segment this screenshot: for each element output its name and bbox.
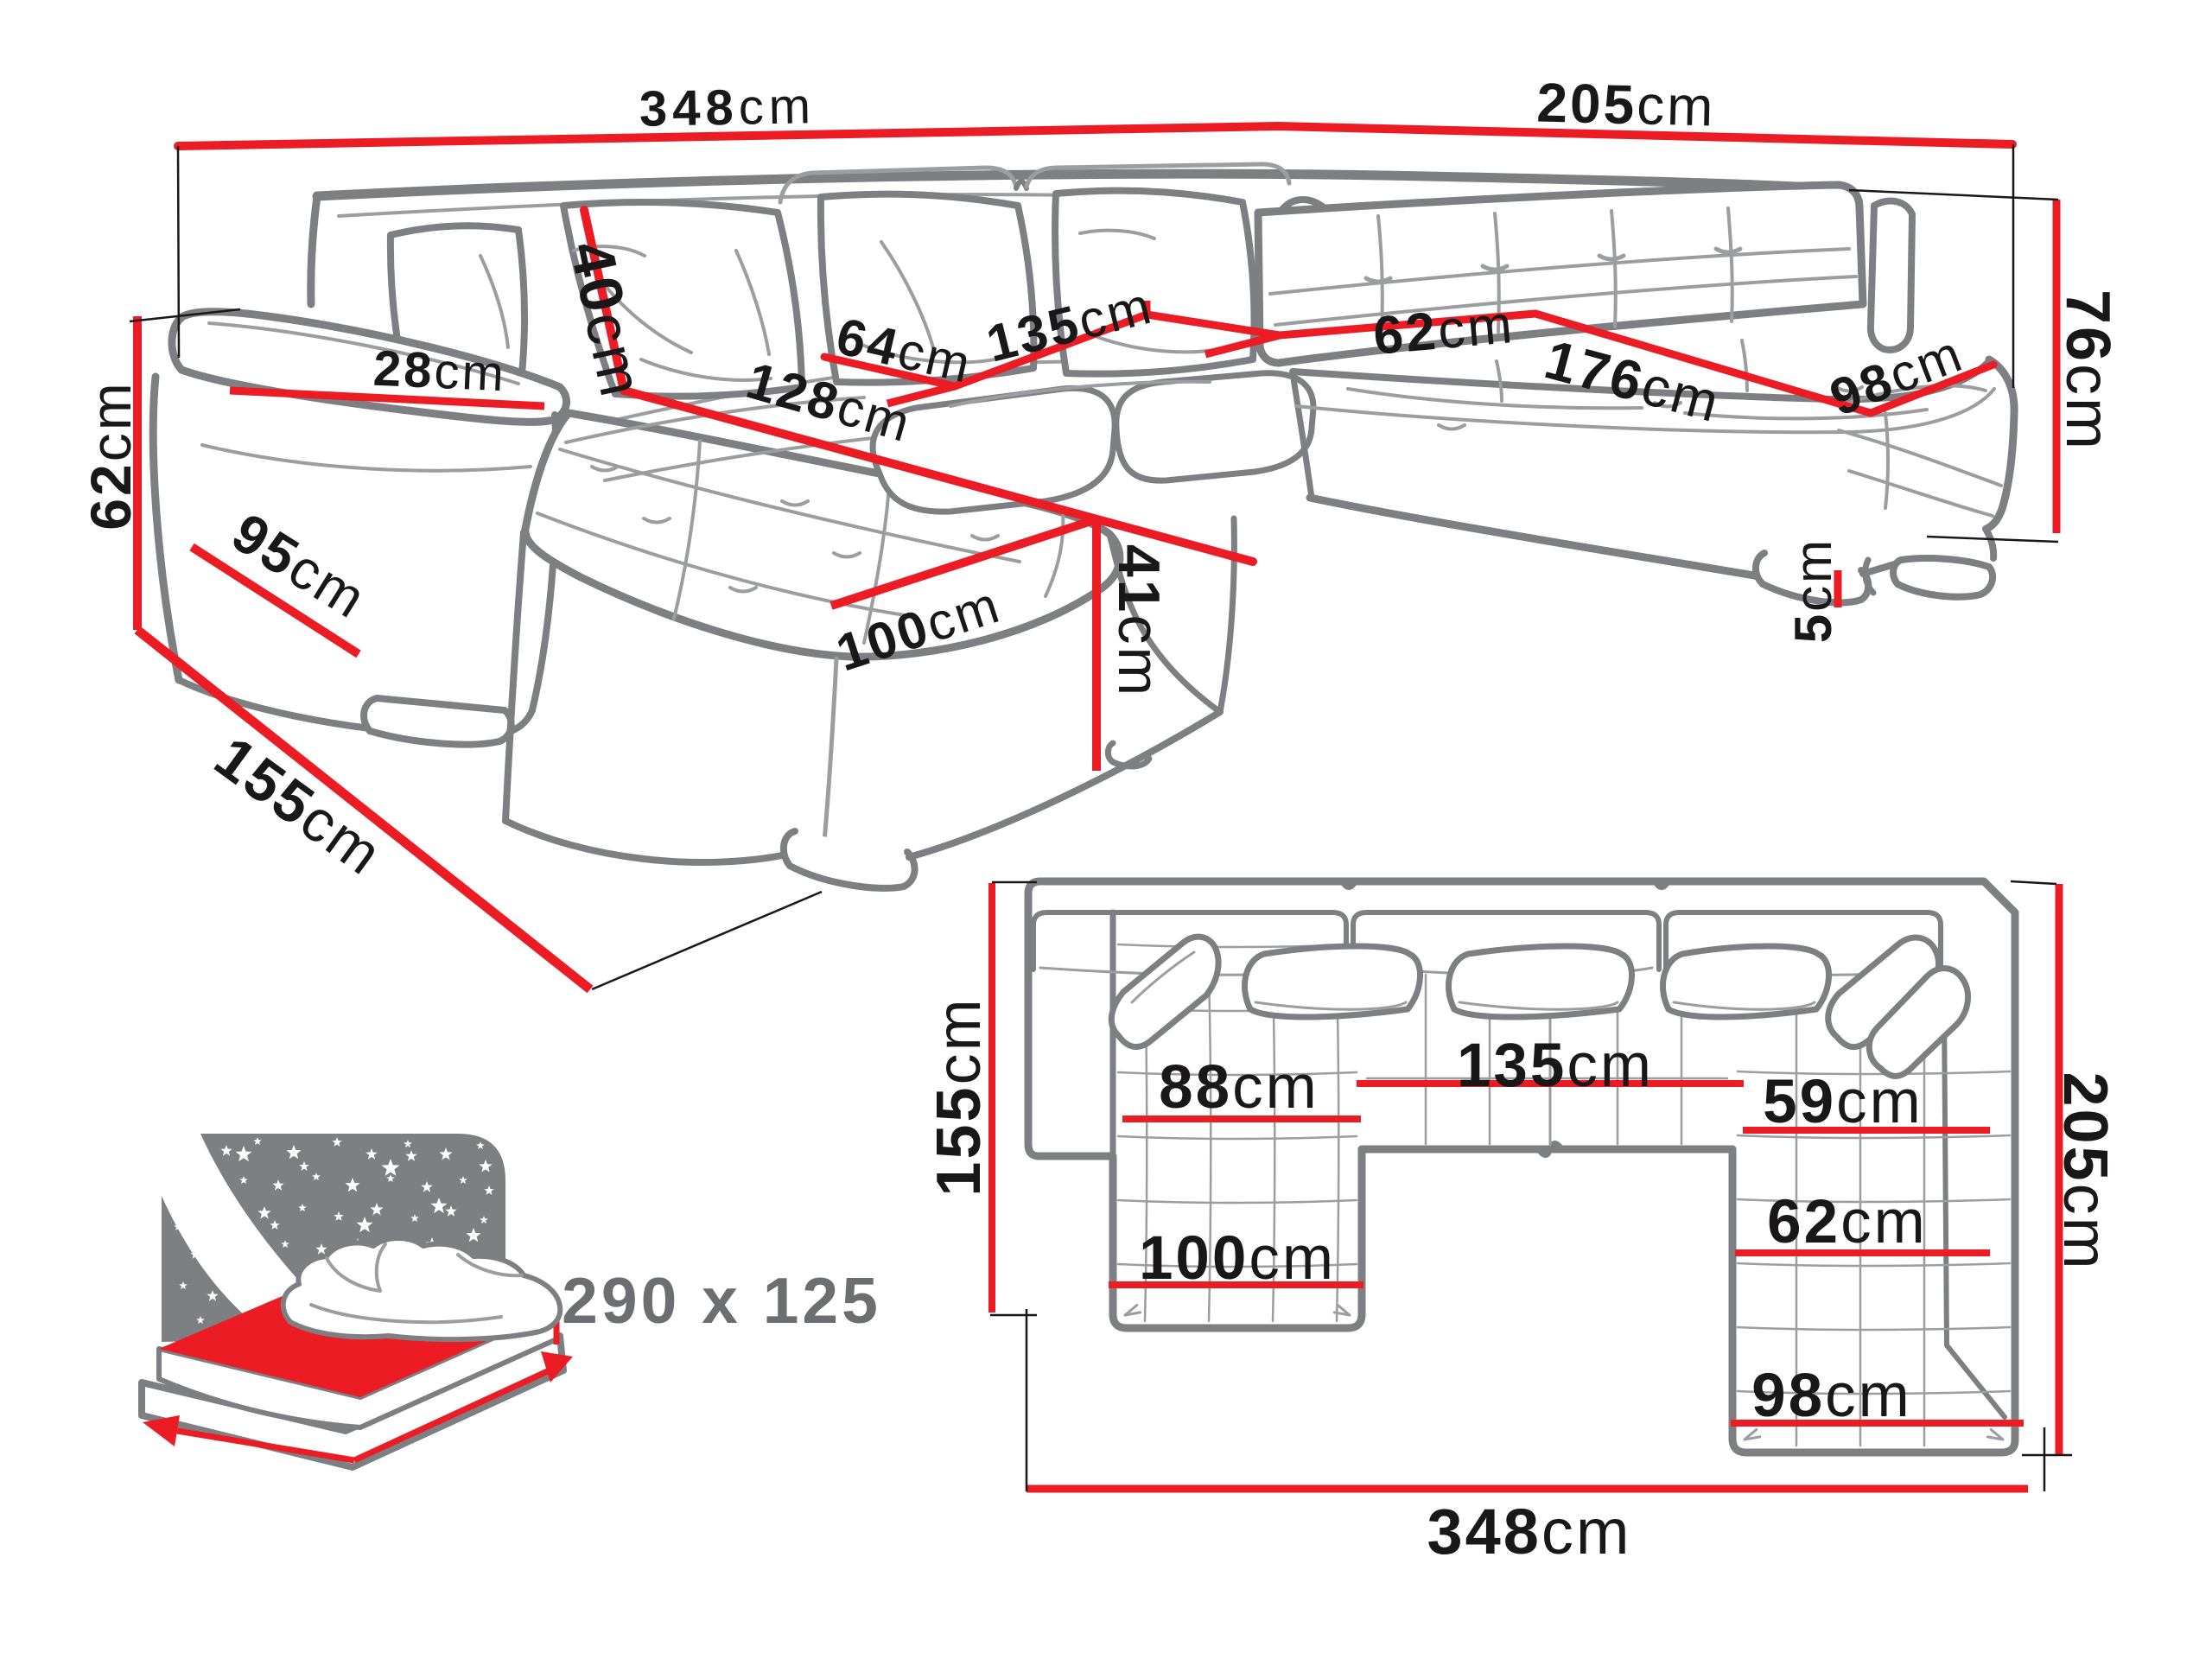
- svg-text:62cm: 62cm: [1767, 1188, 1928, 1256]
- svg-text:62cm: 62cm: [79, 380, 143, 530]
- svg-text:348cm: 348cm: [1427, 1496, 1631, 1567]
- svg-text:98cm: 98cm: [1751, 1362, 1912, 1430]
- svg-text:88cm: 88cm: [1159, 1053, 1319, 1122]
- svg-text:62cm: 62cm: [1370, 295, 1516, 366]
- svg-text:59cm: 59cm: [1763, 1068, 1923, 1136]
- svg-text:155cm: 155cm: [925, 996, 994, 1196]
- svg-text:76cm: 76cm: [2053, 289, 2122, 452]
- svg-text:41cm: 41cm: [1106, 544, 1172, 698]
- svg-text:100cm: 100cm: [1139, 1224, 1336, 1293]
- svg-text:348cm: 348cm: [639, 78, 816, 137]
- svg-text:205cm: 205cm: [2050, 1071, 2120, 1271]
- svg-text:5cm: 5cm: [1784, 537, 1842, 643]
- svg-text:135cm: 135cm: [1457, 1032, 1654, 1100]
- svg-text:205cm: 205cm: [1536, 71, 1717, 137]
- svg-text:28cm: 28cm: [372, 340, 508, 402]
- svg-text:290 x 125: 290 x 125: [562, 1264, 881, 1337]
